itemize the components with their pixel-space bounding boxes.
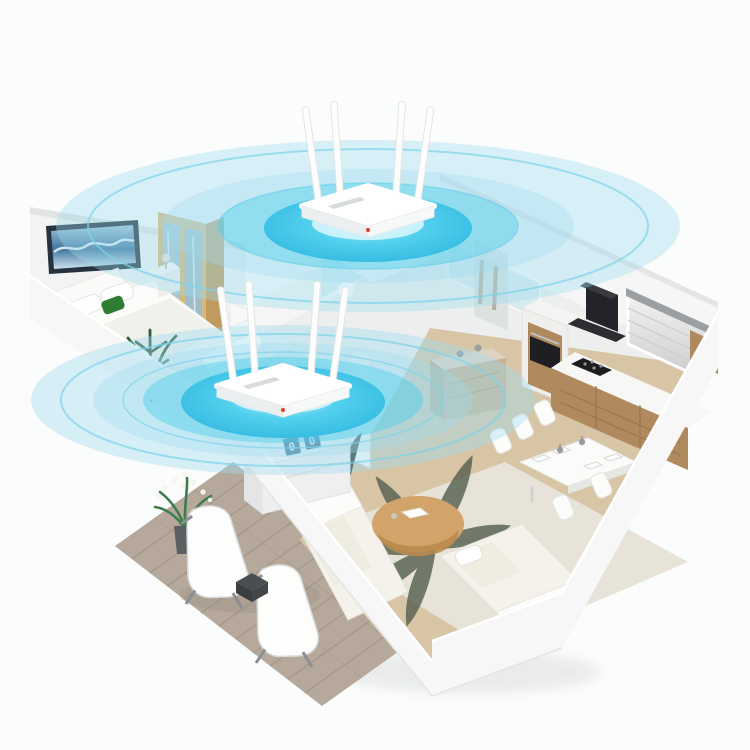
scene-wifi-home-render: 0 0 [0, 0, 750, 750]
cup [391, 513, 397, 519]
decor-vase [475, 345, 482, 352]
